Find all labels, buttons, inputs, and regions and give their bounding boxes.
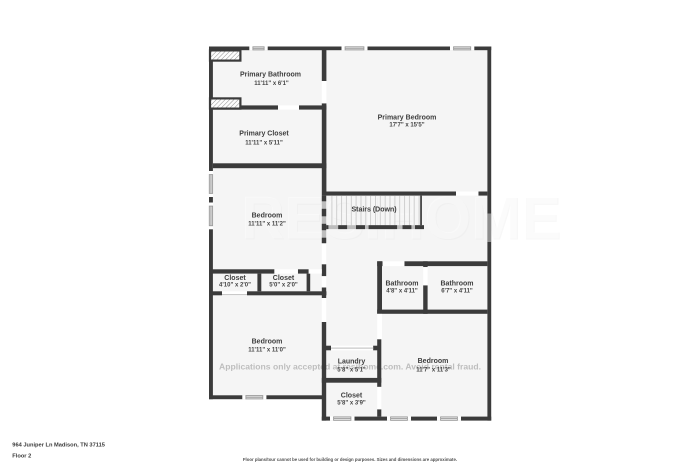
svg-text:Primary Bathroom: Primary Bathroom: [240, 71, 301, 78]
svg-text:Bedroom: Bedroom: [252, 339, 283, 346]
svg-text:5'8" x 3'9": 5'8" x 3'9": [337, 401, 366, 407]
svg-text:Closet: Closet: [273, 275, 295, 282]
svg-text:Floor plans/tour cannot be use: Floor plans/tour cannot be used for buil…: [243, 457, 457, 462]
svg-text:4'8" x 4'11": 4'8" x 4'11": [386, 288, 418, 294]
svg-text:6'7" x 4'11": 6'7" x 4'11": [441, 288, 473, 294]
svg-text:11'7" x 11'3": 11'7" x 11'3": [416, 367, 451, 373]
svg-text:Laundry: Laundry: [338, 359, 366, 366]
svg-text:Bedroom: Bedroom: [418, 358, 449, 365]
svg-text:5'0" x 2'0": 5'0" x 2'0": [269, 282, 298, 288]
svg-text:Stairs (Down): Stairs (Down): [351, 206, 396, 213]
svg-text:Primary Bedroom: Primary Bedroom: [378, 114, 437, 121]
svg-text:11'11" x 5'11": 11'11" x 5'11": [245, 141, 283, 147]
svg-text:Closet: Closet: [341, 393, 363, 400]
svg-text:Bathroom: Bathroom: [385, 280, 418, 287]
svg-text:Primary Closet: Primary Closet: [239, 130, 289, 137]
svg-text:17'7" x 15'5": 17'7" x 15'5": [389, 123, 424, 129]
svg-text:Bedroom: Bedroom: [252, 213, 283, 220]
svg-text:Closet: Closet: [224, 275, 246, 282]
svg-text:11'11" x 11'0": 11'11" x 11'0": [248, 347, 286, 353]
svg-text:11'11" x 6'1": 11'11" x 6'1": [254, 81, 289, 87]
svg-text:Bathroom: Bathroom: [440, 280, 473, 287]
svg-text:964 Juniper Ln Madison, TN 371: 964 Juniper Ln Madison, TN 37115: [12, 442, 105, 448]
svg-text:Floor 2: Floor 2: [12, 453, 31, 459]
svg-text:11'11" x 11'2": 11'11" x 11'2": [248, 221, 286, 227]
svg-text:5'8" x 5'1": 5'8" x 5'1": [337, 367, 366, 373]
svg-text:4'10" x 2'0": 4'10" x 2'0": [219, 282, 251, 288]
